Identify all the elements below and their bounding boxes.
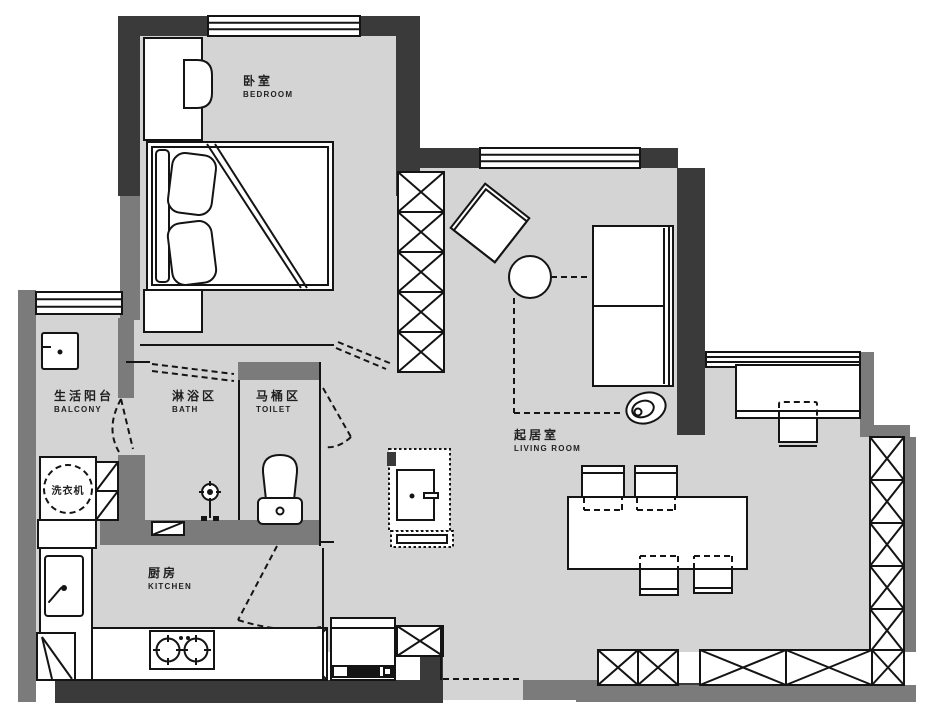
pillow [167,152,218,217]
balcony-label-en: BALCONY [54,405,114,415]
balcony-window [36,292,122,314]
wall-balcony-divider [118,318,134,398]
sofa [593,226,673,386]
wall-toilet-top [238,362,320,380]
desk [736,365,860,418]
floorplan: 卧室 BEDROOM 起居室 LIVING ROOM 厨房 KITCHEN 生活… [0,0,950,715]
wall-bedroom-left [118,16,140,196]
entry-cabinet [331,618,395,680]
dresser [144,290,202,332]
bed [147,142,333,290]
room-label-toilet: 马桶区 TOILET [256,389,301,415]
washing-machine-label: 洗衣机 [41,482,95,497]
wall-bath-pillar [118,455,145,520]
kitchen-sink [45,556,83,616]
wall-bottom-right-outer [576,685,916,702]
room-label-bath: 淋浴区 BATH [172,389,217,415]
room-label-bedroom: 卧室 BEDROOM [243,74,293,100]
toilet-label-zh: 马桶区 [256,389,301,405]
fridge [387,449,453,547]
corner-cabinet [37,633,75,680]
balcony-label-zh: 生活阳台 [54,389,114,405]
entry-floor [441,650,600,680]
room-label-balcony: 生活阳台 BALCONY [54,389,114,415]
balcony-sink [42,333,78,369]
toilet-fixture [258,455,302,524]
bath-label-zh: 淋浴区 [172,389,217,405]
hatch-wall-center [398,172,444,372]
wall-niche [152,522,184,535]
wall-right-upper [860,352,874,437]
wall-entry-step [420,655,443,700]
living-label-en: LIVING ROOM [514,444,581,454]
stove [150,631,214,669]
kitchen-label-zh: 厨房 [148,566,192,582]
bedroom-window [208,16,360,36]
laundry-cabinet [96,462,118,491]
bedroom-label-zh: 卧室 [243,74,293,90]
fridge-handle [424,493,438,498]
laundry-cabinet [96,491,118,520]
fridge-hinge [387,452,396,466]
headboard [156,150,169,282]
laundry-counter [38,520,96,548]
wall-left-outer [18,290,36,702]
living-label-zh: 起居室 [514,428,581,444]
wall-right-step [860,425,910,437]
hatch-wall-bottom [598,650,904,685]
bedroom-label-en: BEDROOM [243,90,293,100]
hatch-wall-right [870,437,904,652]
room-label-kitchen: 厨房 KITCHEN [148,566,192,592]
bath-label-en: BATH [172,405,217,415]
round-side-table [509,256,551,298]
pillow [166,220,217,287]
kitchen-label-en: KITCHEN [148,582,192,592]
wall-bottom [55,680,443,703]
living-window [480,148,640,168]
dining-table [568,497,747,569]
wall-living-right [677,168,705,435]
toilet-label-en: TOILET [256,405,301,415]
entry-landing [441,680,523,700]
wall-entry-right [523,680,600,700]
bedside-table [184,60,212,108]
floorplan-drawing [0,0,950,715]
room-label-living: 起居室 LIVING ROOM [514,428,581,454]
